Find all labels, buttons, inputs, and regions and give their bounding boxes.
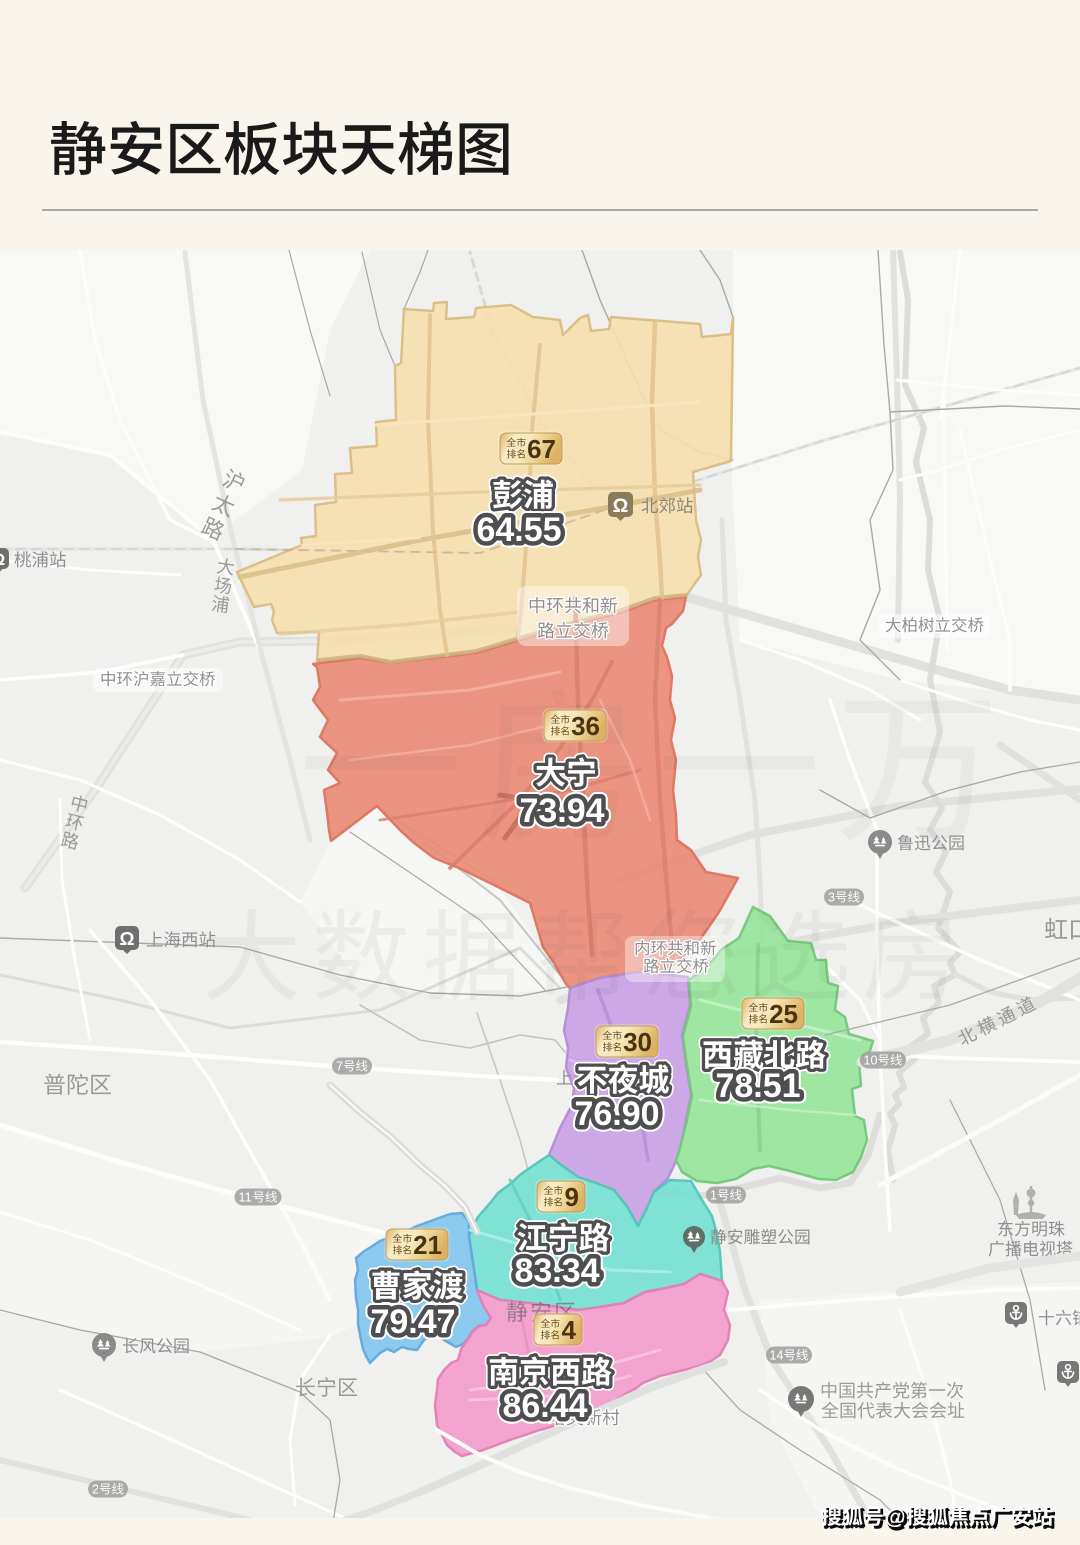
svg-text:1: 1 — [710, 1189, 717, 1203]
svg-text:3: 3 — [828, 891, 835, 905]
svg-text:Ω: Ω — [0, 551, 5, 569]
svg-text:64.55: 64.55 — [476, 511, 561, 549]
svg-text:83.34: 83.34 — [514, 1252, 599, 1290]
svg-text:9: 9 — [565, 1182, 579, 1212]
svg-text:Ω: Ω — [120, 928, 135, 949]
svg-text:7: 7 — [336, 1060, 343, 1074]
svg-text:78.51: 78.51 — [715, 1067, 800, 1105]
svg-text:73.94: 73.94 — [519, 792, 604, 830]
svg-text:10: 10 — [864, 1054, 878, 1068]
svg-text:Ω: Ω — [613, 495, 629, 517]
svg-text:76.90: 76.90 — [574, 1095, 659, 1133]
svg-text:25: 25 — [769, 999, 798, 1029]
svg-text:11: 11 — [239, 1191, 252, 1205]
svg-text:30: 30 — [623, 1027, 652, 1057]
svg-text:14: 14 — [770, 1349, 784, 1363]
svg-text:4: 4 — [562, 1315, 577, 1345]
svg-text:86.44: 86.44 — [502, 1387, 587, 1425]
svg-text:@: @ — [885, 1506, 905, 1529]
svg-text:2: 2 — [92, 1483, 99, 1497]
svg-text:67: 67 — [527, 434, 556, 464]
svg-text:21: 21 — [413, 1230, 442, 1260]
svg-text:36: 36 — [571, 711, 600, 741]
svg-text:79.47: 79.47 — [370, 1303, 455, 1341]
